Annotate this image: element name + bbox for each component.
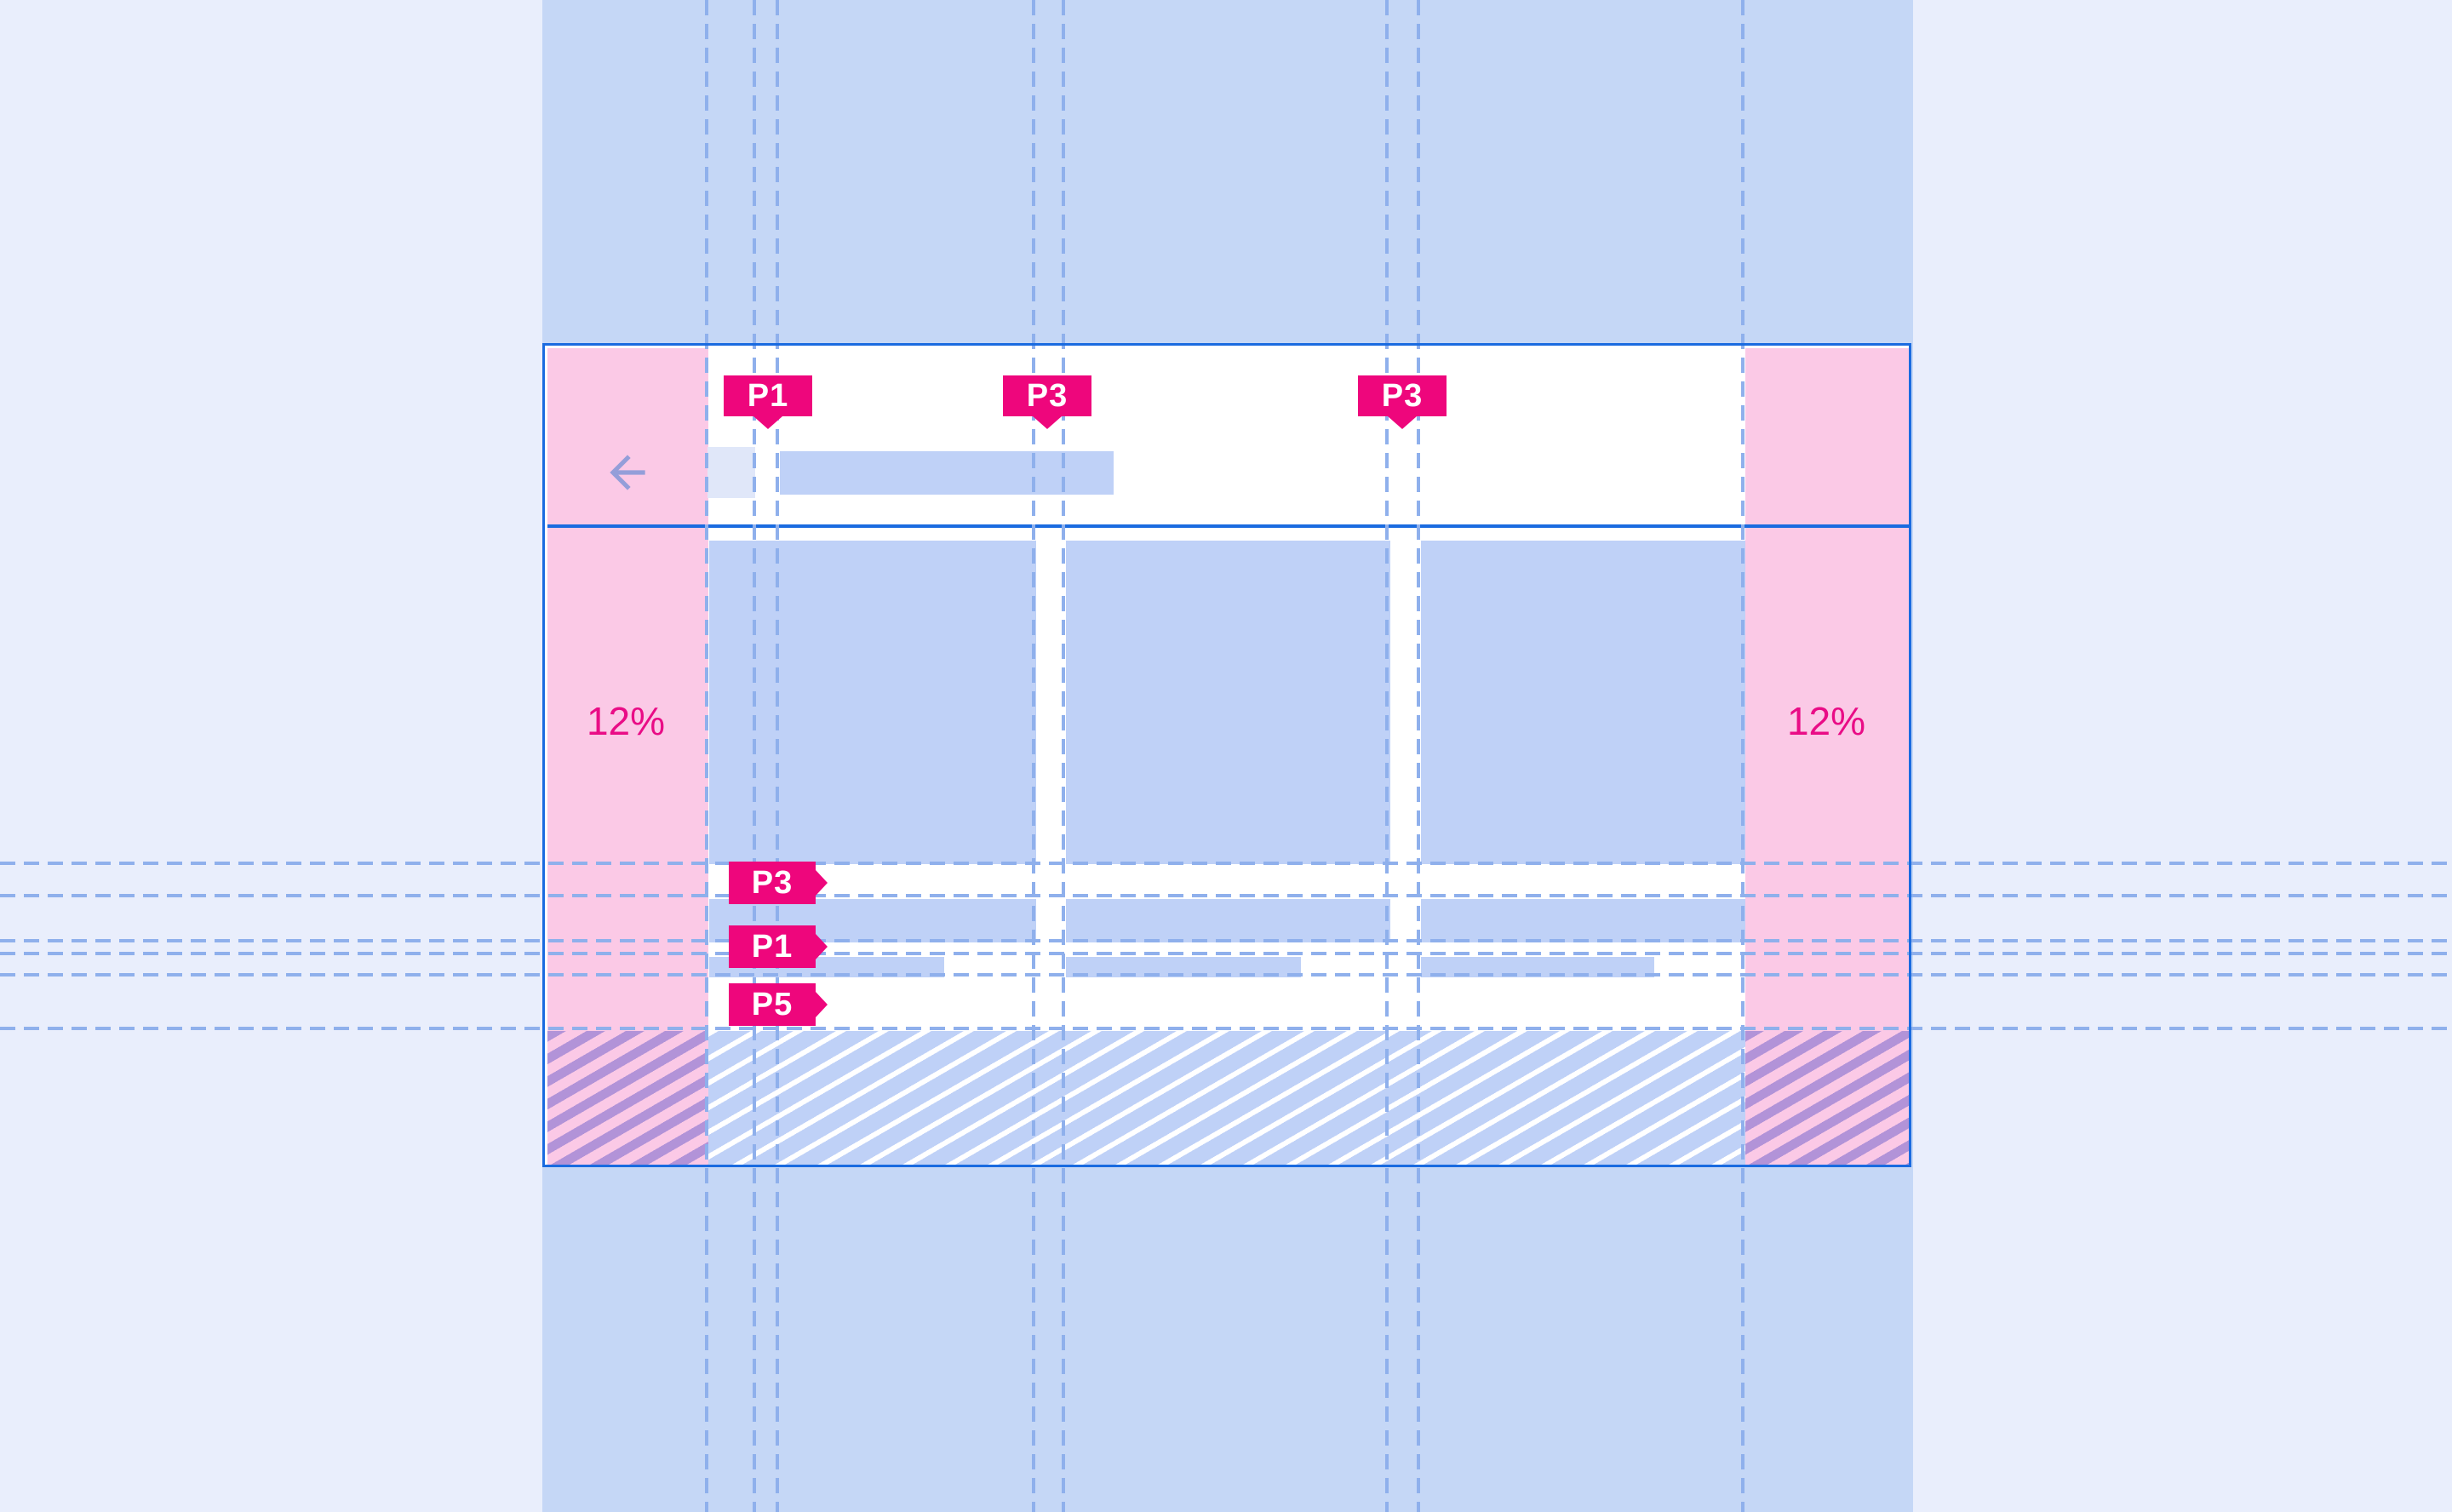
- guide-row1-bottom: [0, 939, 2452, 942]
- padding-chip-side-p1: P1: [729, 925, 816, 968]
- right-margin-percent-label: 12%: [1754, 698, 1899, 744]
- left-margin-percent-label: 12%: [553, 698, 698, 744]
- list-row1-placeholder-2: [1066, 899, 1390, 942]
- guide-right-margin-edge: [1741, 0, 1744, 1512]
- bottom-hatch-content: [708, 1031, 1745, 1167]
- guide-p1-left: [753, 0, 756, 1512]
- guide-gutter1-right: [1062, 0, 1065, 1512]
- card-placeholder-3: [1421, 541, 1745, 864]
- padding-chip-top-p1: P1: [724, 375, 812, 416]
- padding-chip-side-p5: P5: [729, 983, 816, 1026]
- card-placeholder-1: [709, 541, 1036, 864]
- guide-hatch-top: [0, 1027, 2452, 1030]
- app-bar-icon-placeholder: [708, 447, 755, 498]
- list-row1-placeholder-3: [1421, 899, 1745, 942]
- guide-row1-top: [0, 894, 2452, 897]
- guide-cards-bottom: [0, 862, 2452, 865]
- card-placeholder-2: [1066, 541, 1390, 864]
- guide-gutter1-left: [1032, 0, 1035, 1512]
- guide-p1-right: [776, 0, 779, 1512]
- bottom-hatch-right-margin: [1745, 1031, 1911, 1167]
- back-arrow-icon: [601, 446, 654, 499]
- guide-gutter2-right: [1417, 0, 1420, 1512]
- padding-chip-top-p3-gutter1: P3: [1003, 375, 1091, 416]
- guide-row2-top: [0, 952, 2452, 955]
- padding-chip-side-p3: P3: [729, 862, 816, 904]
- guide-gutter2-left: [1385, 0, 1389, 1512]
- guide-left-margin-edge: [705, 0, 708, 1512]
- screen-mockup: [542, 343, 1911, 1167]
- layout-spec-canvas: P1 P3 P3 P3 P1 P5 12% 12%: [0, 0, 2452, 1512]
- guide-row2-bottom: [0, 973, 2452, 976]
- bottom-hatch-left-margin: [547, 1031, 708, 1167]
- padding-chip-top-p3-gutter2: P3: [1358, 375, 1447, 416]
